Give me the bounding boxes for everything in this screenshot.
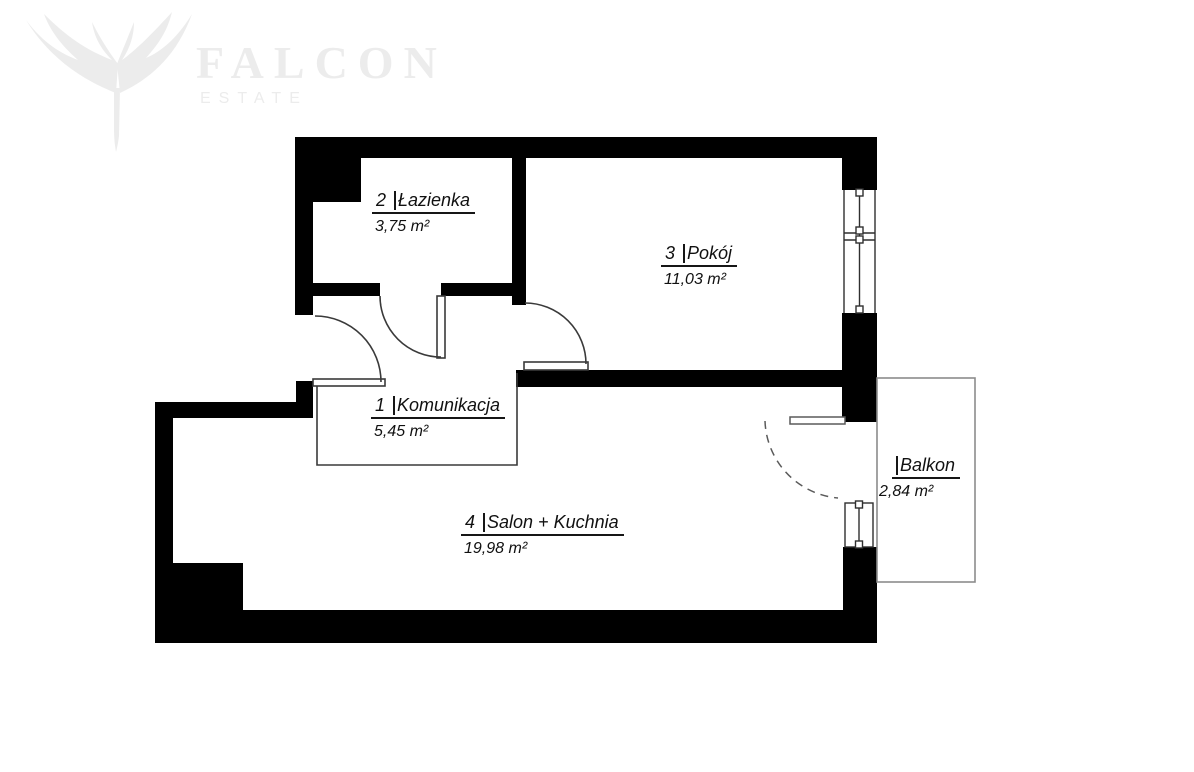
room-title: Balkon (892, 455, 960, 479)
separator-bar (683, 244, 685, 263)
room-area: 5,45 m² (371, 419, 505, 441)
falcon-wings-icon (26, 12, 192, 152)
room-area: 19,98 m² (461, 536, 624, 558)
room-title: 1Komunikacja (371, 395, 505, 419)
room-label-pokoj: 3Pokój 11,03 m² (661, 243, 737, 289)
wall-top (295, 137, 877, 158)
room-area: 11,03 m² (661, 267, 737, 289)
logo-tagline-text: ESTATE (200, 90, 308, 107)
floor-plan-stage: FALCON ESTATE (0, 0, 1194, 772)
separator-bar (394, 191, 396, 210)
pokoj-door-arc (525, 303, 586, 364)
logo-watermark: FALCON ESTATE (26, 12, 447, 152)
wall-salon-top-left (155, 402, 313, 418)
entry-door-arc (315, 316, 381, 382)
room-label-lazienka: 2Łazienka 3,75 m² (372, 190, 475, 236)
wall-bath-pokoj-divider (512, 156, 526, 305)
balcony-door-arc-dashed (765, 421, 838, 498)
balcony-door-leaf (790, 417, 845, 424)
separator-bar (483, 513, 485, 532)
wall-bottom (155, 610, 877, 643)
room-label-salon-kuchnia: 4Salon + Kuchnia 19,98 m² (461, 512, 624, 558)
room-number: 4 (465, 512, 475, 533)
pokoj-door-leaf (524, 362, 588, 370)
room-title: 4Salon + Kuchnia (461, 512, 624, 536)
room-area: 2,84 m² (876, 479, 960, 501)
wall-left-upper (295, 137, 313, 315)
floor-plan-drawing: FALCON ESTATE (0, 0, 1194, 772)
room-number: 1 (375, 395, 385, 416)
walls (155, 137, 877, 643)
room-title: 3Pokój (661, 243, 737, 267)
room-name: Pokój (687, 243, 732, 263)
wall-right-mid (842, 313, 877, 422)
room-name: Salon + Kuchnia (487, 512, 619, 532)
wall-right-top (842, 137, 877, 190)
room-label-komunikacja: 1Komunikacja 5,45 m² (371, 395, 505, 441)
balcony-door (765, 417, 845, 498)
separator-bar (393, 396, 395, 415)
logo-brand-text: FALCON (196, 37, 447, 88)
separator-bar (896, 456, 898, 475)
room-name: Komunikacja (397, 395, 500, 415)
room-title: 2Łazienka (372, 190, 475, 214)
bathroom-door-arc (380, 296, 441, 357)
bathroom-door-leaf (437, 296, 445, 358)
room-number: 2 (376, 190, 386, 211)
balcony-glass-panel (845, 501, 873, 548)
room-name: Łazienka (398, 190, 470, 210)
room-area: 3,75 m² (372, 214, 475, 236)
wall-bath-bottom-left (312, 283, 380, 296)
room-name: Balkon (900, 455, 955, 475)
entry-door-leaf (313, 379, 385, 386)
wall-pokoj-bottom (516, 370, 845, 387)
pokoj-window (844, 189, 875, 313)
wall-bath-bottom-right (441, 283, 516, 296)
room-label-balkon: Balkon 2,84 m² (876, 455, 960, 501)
room-number: 3 (665, 243, 675, 264)
